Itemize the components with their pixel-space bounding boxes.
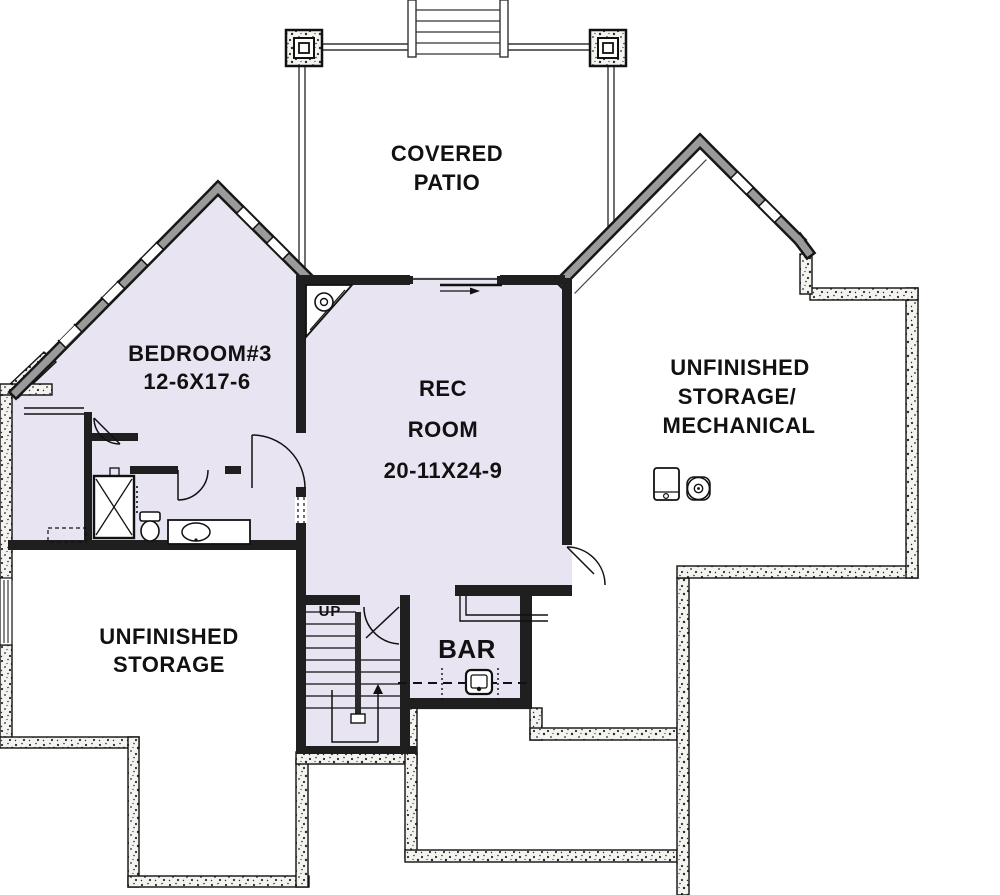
wall-right-x906 (906, 288, 918, 578)
wall-left-lower (0, 645, 12, 747)
wall-vert-x677 (677, 578, 689, 895)
wall-slope-connector (800, 254, 812, 294)
bath-wall-2 (130, 466, 178, 474)
patio-steps (408, 0, 508, 57)
bar-right-wall (520, 585, 532, 708)
closet-right-wall (84, 412, 92, 540)
wall-bottom-horiz (128, 876, 309, 887)
wall-vert-x128 (128, 737, 139, 887)
rec-right-wall (562, 278, 572, 545)
left-wall-window (0, 578, 12, 645)
vanity-sink (168, 520, 250, 544)
wall-horiz-y566 (677, 566, 918, 578)
storage-mech-label-2: STORAGE/ (678, 384, 797, 409)
shower (94, 468, 137, 538)
stairs-up-label: UP (319, 603, 342, 620)
rec-storage-door (567, 547, 605, 585)
rec-bar-wall (455, 585, 572, 596)
storage-mech-label-1: UNFINISHED (670, 355, 809, 380)
stair-bottom-wall (296, 746, 417, 754)
toilet (140, 512, 160, 541)
storage-mech-label-3: MECHANICAL (663, 413, 816, 438)
wall-left-upper (0, 386, 12, 580)
covered-patio-label-2: PATIO (414, 170, 480, 195)
rec-room-name-2: ROOM (408, 417, 478, 442)
furnace (654, 468, 679, 500)
bedroom3-name: BEDROOM#3 (128, 341, 272, 366)
wall-horiz-y850 (405, 850, 677, 862)
bath-wall-3 (225, 466, 241, 474)
wall-horiz-y728 (530, 728, 677, 740)
rec-room-name-1: REC (419, 376, 467, 401)
patio-column-left (286, 30, 322, 66)
stair-newel (351, 714, 365, 723)
wall-topright-y288 (810, 288, 918, 300)
wall-vert-x296 (296, 760, 308, 887)
bar-label: BAR (438, 634, 496, 664)
patio-column-right (590, 30, 626, 66)
rec-top-wall-right (500, 275, 565, 285)
water-heater (687, 477, 710, 500)
stair-right-wall (400, 595, 410, 753)
stair-handrail (355, 612, 361, 716)
rec-wall-opening (295, 497, 307, 523)
bedroom3-dimensions: 12-6X17-6 (143, 369, 250, 394)
covered-patio-label-1: COVERED (391, 141, 503, 166)
rec-left-wall-upper (296, 275, 306, 433)
rec-top-wall-left (306, 275, 410, 285)
rec-room-dimensions: 20-11X24-9 (384, 458, 503, 483)
unfinished-storage-label-2: STORAGE (113, 652, 225, 677)
rec-left-wall-lower (296, 487, 306, 747)
unfinished-storage-label-1: UNFINISHED (99, 624, 238, 649)
floor-plan-page: UP COVERED PATIO BEDROOM#3 12-6X17-6 REC… (0, 0, 1000, 895)
bar-sink (466, 670, 492, 694)
floor-plan: UP COVERED PATIO BEDROOM#3 12-6X17-6 REC… (0, 0, 1000, 895)
wall-bottomleft-horiz (0, 737, 139, 748)
bar-bottom-wall (405, 698, 532, 709)
